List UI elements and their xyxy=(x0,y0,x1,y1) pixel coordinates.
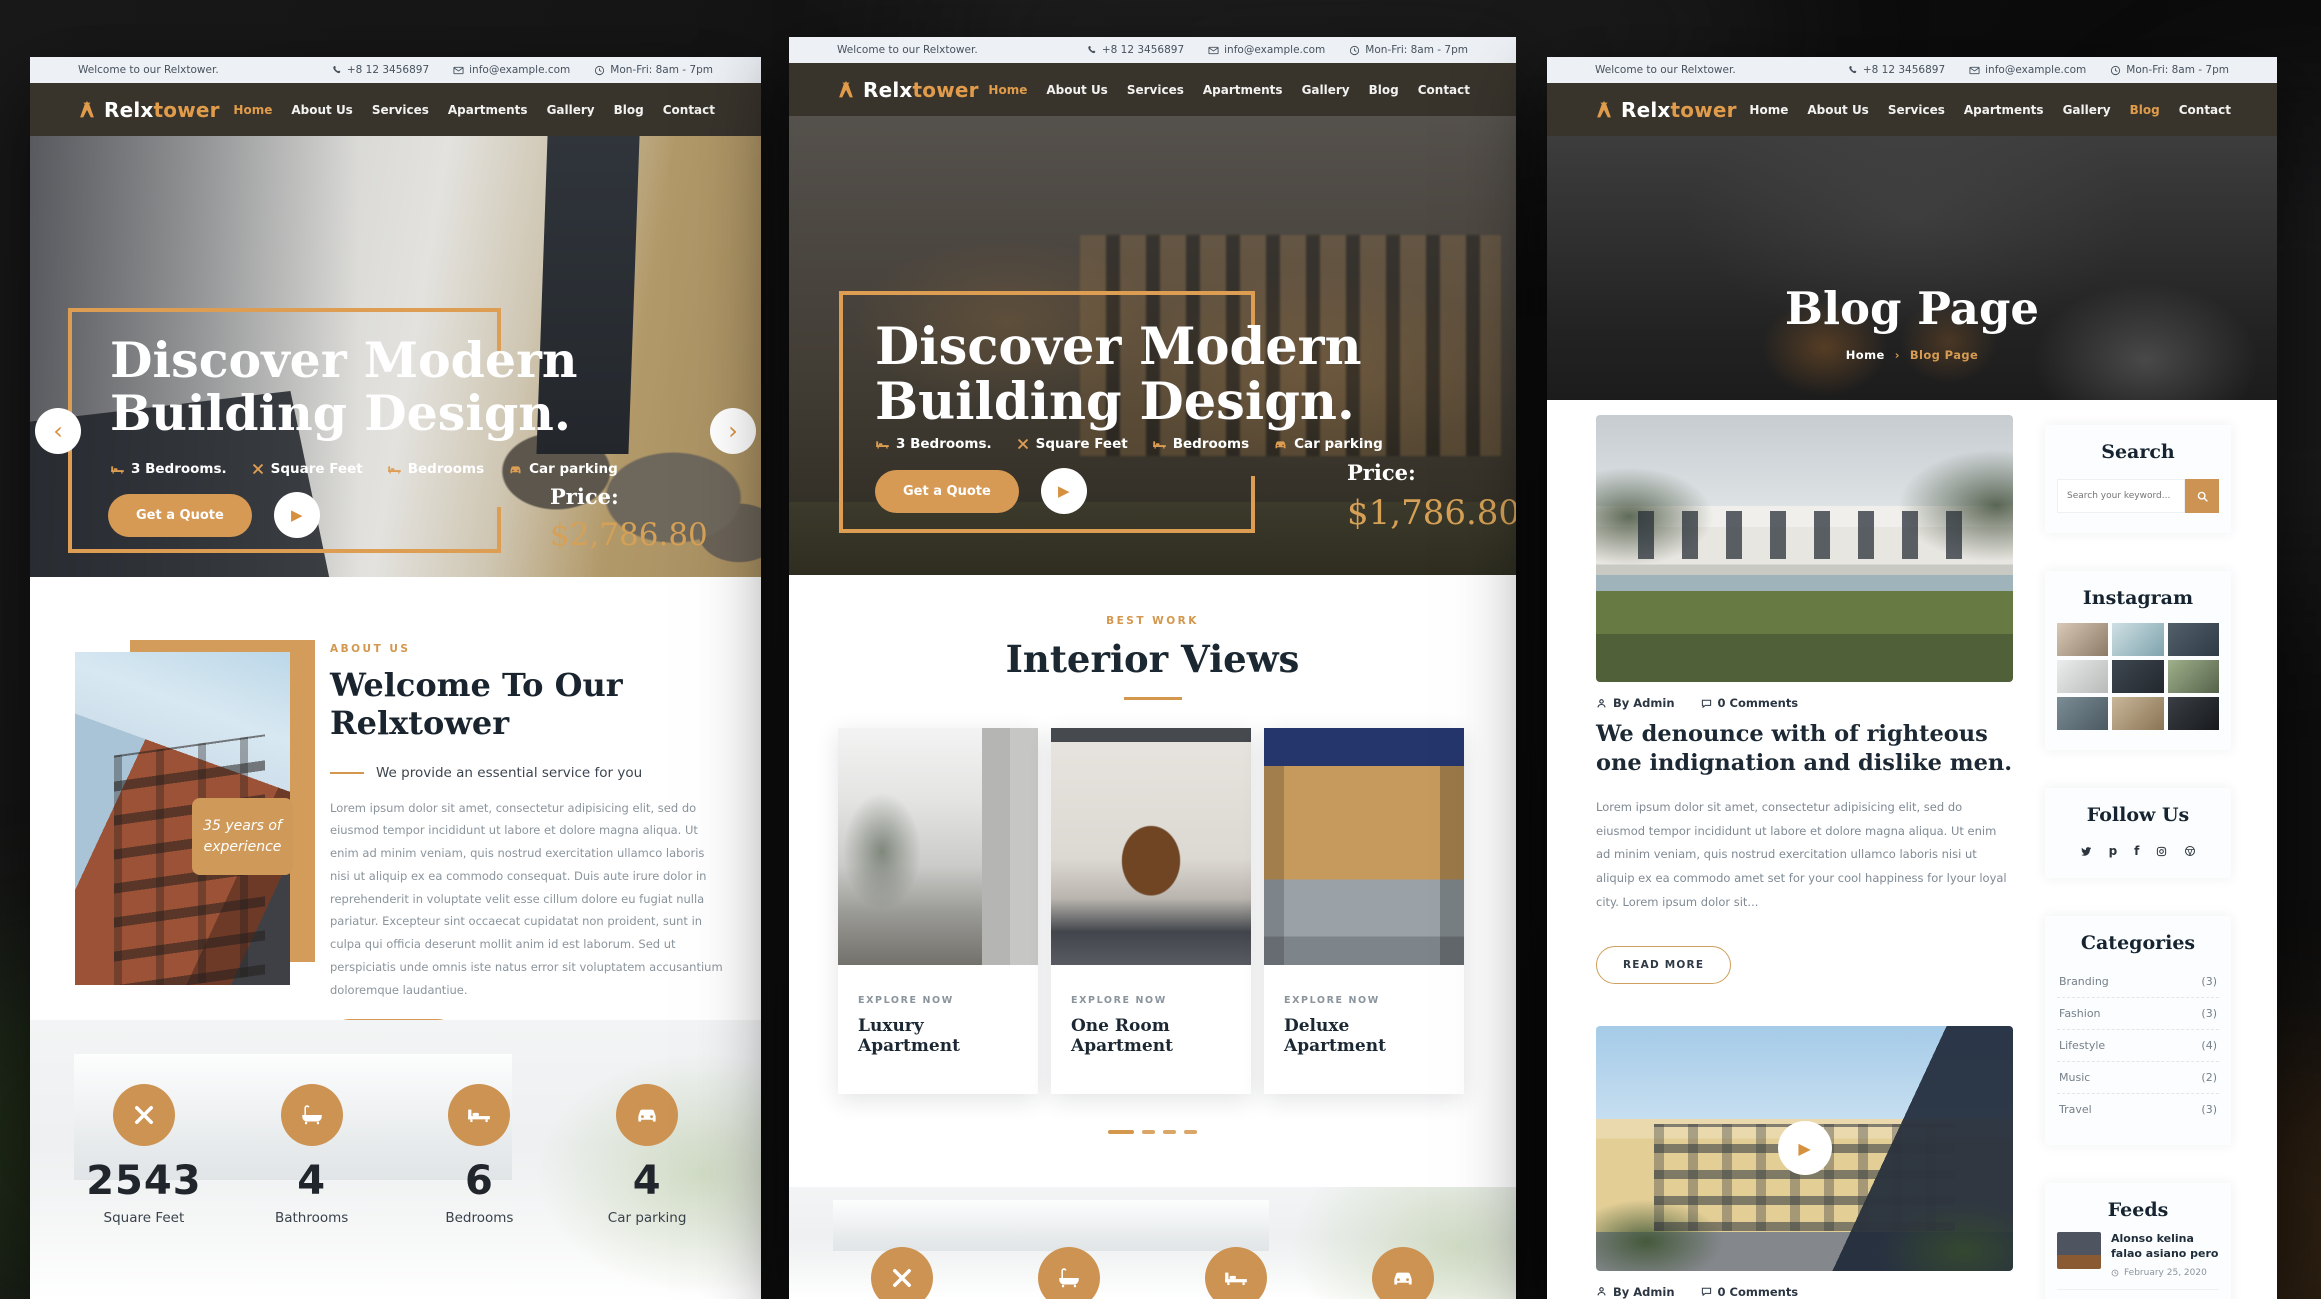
hero-frame xyxy=(68,549,501,553)
bathtub-icon xyxy=(1038,1247,1100,1299)
clock-icon xyxy=(2110,65,2121,76)
twitter-icon[interactable] xyxy=(2080,845,2092,857)
email-link[interactable]: info@example.com xyxy=(1969,64,2086,76)
comment-icon xyxy=(1701,1286,1712,1297)
nav-item-services[interactable]: Services xyxy=(372,103,429,117)
price-value: $1,786.80 xyxy=(1347,493,1516,533)
nav-item-apartments[interactable]: Apartments xyxy=(1964,103,2044,117)
interior-cards: EXPLORE NOW Luxury Apartment EXPLORE NOW… xyxy=(789,700,1516,1094)
mail-icon xyxy=(1208,45,1219,56)
apartment-card[interactable]: EXPLORE NOW One Room Apartment xyxy=(1051,728,1251,1094)
widget-title: Search xyxy=(2057,441,2219,463)
carousel-dot[interactable] xyxy=(1184,1130,1197,1134)
topbar: Welcome to our Relxtower. +8 12 3456897 … xyxy=(1547,57,2277,83)
apartment-photo xyxy=(1264,728,1464,965)
category-list: Branding(3) Fashion(3) Lifestyle(4) Musi… xyxy=(2057,966,2219,1125)
instagram-icon[interactable] xyxy=(2156,846,2167,857)
widget-title: Follow Us xyxy=(2057,804,2219,826)
about-content: ABOUT US Welcome To OurRelxtower We prov… xyxy=(330,643,726,1057)
search-form xyxy=(2057,479,2219,513)
about-section: 35 years ofexperience ABOUT US Welcome T… xyxy=(30,577,761,1020)
nav-item-blog[interactable]: Blog xyxy=(1369,83,1399,97)
breadcrumb-home-link[interactable]: Home xyxy=(1846,348,1885,362)
post-video-thumbnail[interactable]: ▶ xyxy=(1596,1026,2013,1271)
card-tag: EXPLORE NOW xyxy=(1071,995,1231,1006)
nav-item-blog[interactable]: Blog xyxy=(2130,103,2160,117)
nav-menu: Home About Us Services Apartments Galler… xyxy=(1749,103,2231,117)
hero-price: Price: $2,786.80 xyxy=(550,484,708,553)
clock-icon xyxy=(2111,1269,2119,1277)
brand-name: Relxtower xyxy=(1621,98,1737,122)
slider-prev-button[interactable]: ‹ xyxy=(35,408,81,454)
pinterest-icon[interactable]: p xyxy=(2109,844,2118,858)
tower-logo-icon xyxy=(76,99,98,121)
bed-icon xyxy=(448,1084,510,1146)
breadcrumb: Home › Blog Page xyxy=(1547,348,2277,362)
bed-icon xyxy=(387,462,402,477)
nav-item-gallery[interactable]: Gallery xyxy=(2063,103,2111,117)
hero-frame xyxy=(497,507,501,553)
instagram-thumb[interactable] xyxy=(2057,697,2108,730)
hero-frame xyxy=(839,529,1255,533)
categories-widget: Categories Branding(3) Fashion(3) Lifest… xyxy=(2045,916,2231,1145)
hero-frame xyxy=(68,308,501,312)
get-a-quote-button[interactable]: Get a Quote xyxy=(875,470,1019,513)
card-title: Deluxe Apartment xyxy=(1284,1016,1444,1056)
hours-text: Mon-Fri: 8am - 7pm xyxy=(2126,64,2229,76)
feature-bedrooms-2: Bedrooms xyxy=(1152,436,1249,452)
hours-text: Mon-Fri: 8am - 7pm xyxy=(610,64,713,76)
search-icon xyxy=(2196,490,2209,503)
tower-logo-icon xyxy=(835,79,857,101)
play-video-button[interactable]: ▶ xyxy=(1778,1121,1832,1175)
breadcrumb-separator-icon: › xyxy=(1895,348,1900,362)
stats-row xyxy=(789,1187,1516,1299)
hero-title: Discover ModernBuilding Design. xyxy=(875,320,1362,430)
feed-item[interactable]: Alonso kelina falao asiano pero February… xyxy=(2057,1221,2219,1290)
brand-logo[interactable]: Relxtower xyxy=(1593,98,1737,122)
instagram-grid xyxy=(2057,623,2219,730)
post-author[interactable]: By Admin xyxy=(1596,1285,1675,1299)
section-eyebrow: BEST WORK xyxy=(789,575,1516,627)
play-icon: ▶ xyxy=(1058,482,1070,500)
ruler-pencil-icon xyxy=(251,462,265,476)
feature-car-parking: Car parking xyxy=(508,461,618,477)
hero-features: 3 Bedrooms. Square Feet Bedrooms Car par… xyxy=(110,461,618,477)
person-icon xyxy=(1596,1286,1607,1297)
nav-item-blog[interactable]: Blog xyxy=(614,103,644,117)
hero-slider: Discover ModernBuilding Design. 3 Bedroo… xyxy=(30,136,761,577)
brand-logo[interactable]: Relxtower xyxy=(76,98,220,122)
post-author[interactable]: By Admin xyxy=(1596,696,1675,710)
phone-icon xyxy=(332,65,342,75)
hero-slider: Discover ModernBuilding Design. 3 Bedroo… xyxy=(789,116,1516,575)
welcome-text: Welcome to our Relxtower. xyxy=(78,64,219,76)
bed-icon xyxy=(1152,437,1167,452)
card-body: EXPLORE NOW Deluxe Apartment xyxy=(1264,965,1464,1094)
instagram-thumb[interactable] xyxy=(2168,623,2219,656)
card-title: One Room Apartment xyxy=(1071,1016,1231,1056)
hero-price: Price: $1,786.80 xyxy=(1347,460,1516,533)
welcome-text: Welcome to our Relxtower. xyxy=(837,44,978,56)
hero-frame xyxy=(839,291,1255,295)
brand-logo[interactable]: Relxtower xyxy=(835,78,979,102)
apartment-card[interactable]: EXPLORE NOW Luxury Apartment xyxy=(838,728,1038,1094)
bathtub-icon xyxy=(281,1084,343,1146)
search-widget: Search xyxy=(2045,425,2231,533)
bed-icon xyxy=(875,437,890,452)
hero-cta-row: Get a Quote ▶ xyxy=(875,468,1087,514)
hours-item: Mon-Fri: 8am - 7pm xyxy=(2110,64,2229,76)
post-comments[interactable]: 0 Comments xyxy=(1701,696,1799,710)
nav-item-contact[interactable]: Contact xyxy=(2179,103,2231,117)
phone-text: +8 12 3456897 xyxy=(1863,64,1945,76)
ruler-pencil-icon xyxy=(871,1247,933,1299)
feed-thumbnail xyxy=(2057,1232,2101,1269)
search-input[interactable] xyxy=(2057,479,2185,513)
price-label: Price: xyxy=(550,484,708,509)
instagram-thumb[interactable] xyxy=(2112,660,2163,693)
get-a-quote-button[interactable]: Get a Quote xyxy=(108,494,252,537)
phone-text: +8 12 3456897 xyxy=(1102,44,1184,56)
apartment-photo xyxy=(838,728,1038,965)
breadcrumb-current: Blog Page xyxy=(1910,348,1978,362)
nav-item-contact[interactable]: Contact xyxy=(1418,83,1470,97)
stats-row: 2543 Square Feet 4 Bathrooms 6 Bedrooms … xyxy=(30,1020,761,1226)
post-meta: By Admin 0 Comments xyxy=(1596,696,2013,710)
wordpress-icon[interactable] xyxy=(2184,845,2196,857)
brand-name: Relxtower xyxy=(104,98,220,122)
nav-menu: Home About Us Services Apartments Galler… xyxy=(988,83,1470,97)
hero-cta-row: Get a Quote ▶ xyxy=(108,492,320,538)
stats-section xyxy=(789,1187,1516,1299)
nav-item-about[interactable]: About Us xyxy=(1807,103,1868,117)
topbar: Welcome to our Relxtower. +8 12 3456897 … xyxy=(789,37,1516,63)
feed-item[interactable]: It is a long established fact that a rea… xyxy=(2057,1290,2219,1299)
nav-item-gallery[interactable]: Gallery xyxy=(1302,83,1350,97)
nav-item-services[interactable]: Services xyxy=(1127,83,1184,97)
apartment-card[interactable]: EXPLORE NOW Deluxe Apartment xyxy=(1264,728,1464,1094)
about-subtitle: We provide an essential service for you xyxy=(330,765,726,781)
read-more-button[interactable]: READ MORE xyxy=(1596,946,1731,984)
blog-hero-banner: Blog Page Home › Blog Page xyxy=(1547,136,2277,400)
clock-icon xyxy=(1349,45,1360,56)
instagram-thumb[interactable] xyxy=(2168,660,2219,693)
feeds-widget: Feeds Alonso kelina falao asiano pero Fe… xyxy=(2045,1183,2231,1299)
topbar: Welcome to our Relxtower. +8 12 3456897 … xyxy=(30,57,761,83)
apartment-photo xyxy=(1051,728,1251,965)
feature-car-parking: Car parking xyxy=(1273,436,1383,452)
car-icon xyxy=(508,462,523,477)
category-item[interactable]: Music(2) xyxy=(2057,1062,2219,1094)
category-item[interactable]: Fashion(3) xyxy=(2057,998,2219,1030)
search-button[interactable] xyxy=(2185,479,2219,513)
email-link[interactable]: info@example.com xyxy=(453,64,570,76)
hero-frame xyxy=(839,291,843,533)
feed-text: Alonso kelina falao asiano pero February… xyxy=(2111,1232,2219,1278)
feature-bedrooms-2: Bedrooms xyxy=(387,461,484,477)
category-item[interactable]: Travel(3) xyxy=(2057,1094,2219,1125)
price-value: $2,786.80 xyxy=(550,517,708,553)
post-image[interactable] xyxy=(1596,415,2013,682)
follow-widget: Follow Us p f xyxy=(2045,788,2231,878)
stat-bedrooms xyxy=(1153,1247,1320,1299)
stat-square-feet xyxy=(819,1247,986,1299)
tower-logo-icon xyxy=(1593,99,1615,121)
car-icon xyxy=(616,1084,678,1146)
feature-square-feet: Square Feet xyxy=(251,461,363,477)
instagram-widget: Instagram xyxy=(2045,571,2231,750)
nav-item-services[interactable]: Services xyxy=(1888,103,1945,117)
brand-name: Relxtower xyxy=(863,78,979,102)
carousel-dot-active[interactable] xyxy=(1108,1130,1134,1134)
category-item[interactable]: Lifestyle(4) xyxy=(2057,1030,2219,1062)
social-links: p f xyxy=(2057,844,2219,858)
hours-text: Mon-Fri: 8am - 7pm xyxy=(1365,44,1468,56)
stat-bathrooms xyxy=(986,1247,1153,1299)
widget-title: Feeds xyxy=(2057,1199,2219,1221)
post-title[interactable]: We denounce with of righteous one indign… xyxy=(1596,720,2013,778)
about-title: Welcome To OurRelxtower xyxy=(330,667,726,743)
nav-item-gallery[interactable]: Gallery xyxy=(547,103,595,117)
carousel-dots xyxy=(789,1130,1516,1134)
feature-bedrooms: 3 Bedrooms. xyxy=(110,461,227,477)
nav-item-home[interactable]: Home xyxy=(1749,103,1788,117)
card-tag: EXPLORE NOW xyxy=(858,995,1018,1006)
feature-bedrooms: 3 Bedrooms. xyxy=(875,436,992,452)
section-title: Interior Views xyxy=(789,637,1516,681)
topbar-contacts: +8 12 3456897 info@example.com Mon-Fri: … xyxy=(1087,44,1468,56)
clock-icon xyxy=(594,65,605,76)
car-icon xyxy=(1273,437,1288,452)
hero-frame xyxy=(1251,476,1255,533)
card-title: Luxury Apartment xyxy=(858,1016,1018,1056)
ruler-pencil-icon xyxy=(113,1084,175,1146)
phone-icon xyxy=(1087,45,1097,55)
stat-car-parking: 4 Car parking xyxy=(563,1084,731,1226)
stat-square-feet: 2543 Square Feet xyxy=(60,1084,228,1226)
topbar-contacts: +8 12 3456897 info@example.com Mon-Fri: … xyxy=(332,64,713,76)
instagram-thumb[interactable] xyxy=(2112,623,2163,656)
about-eyebrow: ABOUT US xyxy=(330,643,726,655)
phone-link[interactable]: +8 12 3456897 xyxy=(1087,44,1184,56)
nav-item-home[interactable]: Home xyxy=(233,103,272,117)
ruler-pencil-icon xyxy=(1016,437,1030,451)
comment-icon xyxy=(1701,698,1712,709)
about-paragraph: Lorem ipsum dolor sit amet, consectetur … xyxy=(330,797,726,1002)
accent-dash xyxy=(330,772,364,774)
facebook-icon[interactable]: f xyxy=(2134,844,2139,858)
nav-item-home[interactable]: Home xyxy=(988,83,1027,97)
instagram-thumb[interactable] xyxy=(2168,697,2219,730)
email-link[interactable]: info@example.com xyxy=(1208,44,1325,56)
person-icon xyxy=(1596,698,1607,709)
hero-title: Discover ModernBuilding Design. xyxy=(110,334,578,440)
stat-car-parking xyxy=(1319,1247,1486,1299)
play-video-button[interactable]: ▶ xyxy=(1041,468,1087,514)
card-body: EXPLORE NOW Luxury Apartment xyxy=(838,965,1038,1094)
blog-post: ▶ By Admin 0 Comments On the other hand,… xyxy=(1596,1026,2013,1299)
navbar: Relxtower Home About Us Services Apartme… xyxy=(789,63,1516,116)
play-icon: ▶ xyxy=(1798,1139,1810,1158)
email-text: info@example.com xyxy=(1224,44,1325,56)
post-meta: By Admin 0 Comments xyxy=(1596,1285,2013,1299)
blog-post: By Admin 0 Comments We denounce with of … xyxy=(1596,415,2013,984)
nav-menu: Home About Us Services Apartments Galler… xyxy=(233,103,715,117)
bed-icon xyxy=(1205,1247,1267,1299)
nav-item-about[interactable]: About Us xyxy=(1046,83,1107,97)
instagram-thumb[interactable] xyxy=(2057,660,2108,693)
car-icon xyxy=(1372,1247,1434,1299)
nav-item-apartments[interactable]: Apartments xyxy=(448,103,528,117)
slider-next-button[interactable]: › xyxy=(710,408,756,454)
interior-views-section: BEST WORK Interior Views EXPLORE NOW Lux… xyxy=(789,575,1516,1187)
instagram-thumb[interactable] xyxy=(2057,623,2108,656)
phone-text: +8 12 3456897 xyxy=(347,64,429,76)
email-text: info@example.com xyxy=(469,64,570,76)
bed-icon xyxy=(110,462,125,477)
card-tag: EXPLORE NOW xyxy=(1284,995,1444,1006)
blog-post-list: By Admin 0 Comments We denounce with of … xyxy=(1596,415,2013,1299)
stats-section: 2543 Square Feet 4 Bathrooms 6 Bedrooms … xyxy=(30,1020,761,1299)
hours-item: Mon-Fri: 8am - 7pm xyxy=(1349,44,1468,56)
carousel-dot[interactable] xyxy=(1163,1130,1176,1134)
nav-item-apartments[interactable]: Apartments xyxy=(1203,83,1283,97)
phone-icon xyxy=(1848,65,1858,75)
stat-bathrooms: 4 Bathrooms xyxy=(228,1084,396,1226)
navbar: Relxtower Home About Us Services Apartme… xyxy=(1547,83,2277,136)
topbar-contacts: +8 12 3456897 info@example.com Mon-Fri: … xyxy=(1848,64,2229,76)
chevron-left-icon: ‹ xyxy=(53,419,63,443)
post-comments[interactable]: 0 Comments xyxy=(1701,1285,1799,1299)
instagram-thumb[interactable] xyxy=(2112,697,2163,730)
blog-content: By Admin 0 Comments We denounce with of … xyxy=(1547,400,2277,1299)
blog-sidebar: Search Instagram xyxy=(2045,415,2231,1299)
email-text: info@example.com xyxy=(1985,64,2086,76)
blog-page-panel: Welcome to our Relxtower. +8 12 3456897 … xyxy=(1547,57,2277,1299)
nav-item-about[interactable]: About Us xyxy=(291,103,352,117)
carousel-dot[interactable] xyxy=(1142,1130,1155,1134)
stat-bedrooms: 6 Bedrooms xyxy=(396,1084,564,1226)
home-page-panel-dark: Welcome to our Relxtower. +8 12 3456897 … xyxy=(789,37,1516,1299)
chevron-right-icon: › xyxy=(728,419,738,443)
feature-square-feet: Square Feet xyxy=(1016,436,1128,452)
category-item[interactable]: Branding(3) xyxy=(2057,966,2219,998)
phone-link[interactable]: +8 12 3456897 xyxy=(332,64,429,76)
nav-item-contact[interactable]: Contact xyxy=(663,103,715,117)
hours-item: Mon-Fri: 8am - 7pm xyxy=(594,64,713,76)
mail-icon xyxy=(1969,65,1980,76)
phone-link[interactable]: +8 12 3456897 xyxy=(1848,64,1945,76)
navbar: Relxtower Home About Us Services Apartme… xyxy=(30,83,761,136)
mail-icon xyxy=(453,65,464,76)
widget-title: Categories xyxy=(2057,932,2219,954)
post-excerpt: Lorem ipsum dolor sit amet, consectetur … xyxy=(1596,796,2013,914)
play-video-button[interactable]: ▶ xyxy=(274,492,320,538)
card-body: EXPLORE NOW One Room Apartment xyxy=(1051,965,1251,1094)
play-icon: ▶ xyxy=(291,506,303,524)
home-page-panel: Welcome to our Relxtower. +8 12 3456897 … xyxy=(30,57,761,1299)
experience-badge: 35 years ofexperience xyxy=(192,798,293,875)
widget-title: Instagram xyxy=(2057,587,2219,609)
triple-template-preview: Welcome to our Relxtower. +8 12 3456897 … xyxy=(0,0,2321,1299)
price-label: Price: xyxy=(1347,460,1516,485)
page-title: Blog Page xyxy=(1547,282,2277,335)
welcome-text: Welcome to our Relxtower. xyxy=(1595,64,1736,76)
hero-features: 3 Bedrooms. Square Feet Bedrooms Car par… xyxy=(875,436,1383,452)
